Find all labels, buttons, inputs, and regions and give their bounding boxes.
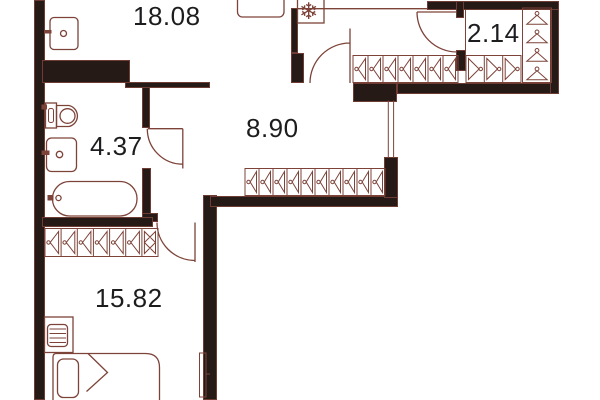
floor-plan: 18.08 2.14 4.37 8.90 15.82 ❄ [0,0,600,400]
toilet-icon [42,103,78,128]
chair-icon [48,325,68,347]
fixtures-overlay: ❄ [0,0,600,400]
bathtub-icon [48,182,138,217]
living-room-door-arc [310,29,350,84]
wardrobe-hatch-entry [353,56,458,83]
bathroom-door-arc [147,129,183,169]
bed-icon [53,354,160,400]
room-label-entry-closet: 2.14 [467,20,520,46]
wardrobe-hatch-hallway [245,169,385,196]
bedroom-door-arc [157,223,195,263]
wardrobe-hatch-closet [466,56,521,83]
desk-icon [45,317,74,353]
entrance-door-arc [417,12,457,52]
blanket-fold-line [87,354,108,392]
room-label-bedroom: 15.82 [95,285,163,311]
wardrobe-hatch-bedroom [45,229,158,257]
kitchen-sink-icon [44,18,78,50]
room-label-bathroom: 4.37 [90,133,143,159]
fridge-icon: ❄ [298,0,325,25]
coat-hangers-icon [523,8,552,83]
room-label-living-kitchen: 18.08 [133,3,201,29]
radiator-icon [200,353,211,397]
pillow-icon [58,359,79,398]
wash-basin-icon [42,138,77,172]
room-label-hallway: 8.90 [246,115,299,141]
snowflake-icon: ❄ [299,0,318,25]
kitchen-counter-icon [238,0,285,17]
duct-shaft-icon [388,101,393,158]
